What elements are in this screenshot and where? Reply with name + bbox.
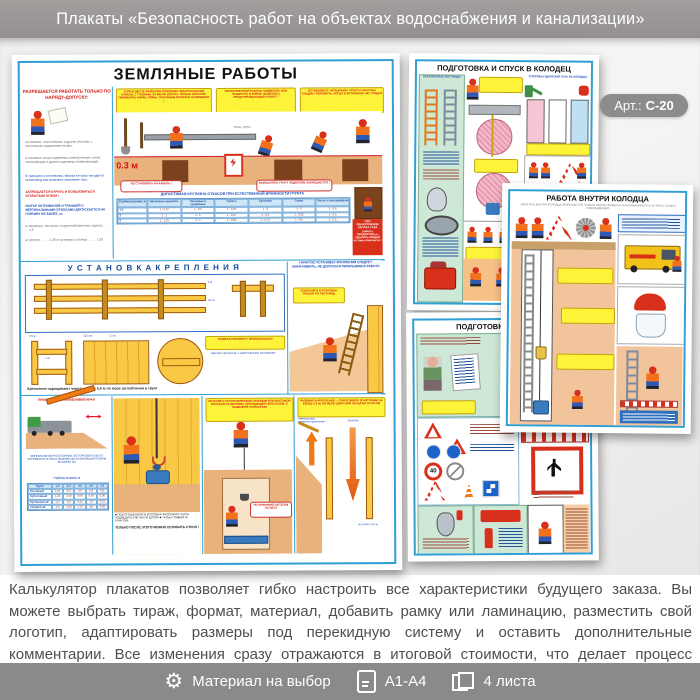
well-shaft	[527, 505, 563, 555]
digging-scene: Рельс, труба 0.3 м	[114, 111, 382, 184]
arrow-down	[346, 427, 360, 501]
table-cell: Суглинок	[248, 199, 282, 208]
micro-text	[423, 538, 469, 550]
crane-ground	[26, 433, 108, 449]
poster-earthworks[interactable]: ЗЕМЛЯНЫЕ РАБОТЫ РАЗРЕШАЕТСЯ РАБОТАТЬ ТОЛ…	[12, 53, 403, 572]
worker-figure	[31, 111, 45, 135]
pipe-rail	[144, 134, 256, 141]
worker-figure	[170, 126, 183, 148]
valve-ground	[114, 484, 200, 512]
valve-fitting	[486, 203, 500, 215]
shield-detail-label: Щитовое крепление с инвентарными распорк…	[205, 352, 281, 356]
timber-post	[46, 280, 52, 320]
crane-panel: ПРАВИЛЬНО УСТАНАВЛИВАЙ КРАН МИНИМАЛЬНОЕ …	[23, 399, 110, 555]
speed-limit-sign: 40	[424, 462, 442, 480]
table-cell: 1 : 0,5	[316, 217, 350, 222]
gas-analyzer	[481, 510, 521, 522]
lamp-top	[430, 261, 446, 267]
worker-figure	[124, 436, 139, 463]
permit-item-4: ЗАПРЕЩАЕТСЯ КУРИТЬ И ПОЛЬЗОВАТЬСЯ ОТКРЫТ…	[25, 191, 109, 199]
trench-slot	[274, 159, 302, 181]
ppe-panel	[617, 286, 686, 345]
bubble-cornices: ОСТАВШИЕСЯ «КОЗЫРЬКИ» ГРУНТА И ВАЛУНЫ СЛ…	[300, 87, 384, 113]
rope-wheel	[576, 218, 596, 238]
poster-descent-title: ПОДГОТОВКА И СПУСК В КОЛОДЕЦ	[417, 63, 591, 74]
worker-figure	[532, 217, 544, 238]
worker-figure	[356, 119, 370, 143]
truck-wheel	[60, 431, 65, 436]
table-cell: Лессы и лессовидные	[316, 198, 350, 207]
worker-figure	[516, 217, 528, 238]
roadworks-sign	[531, 446, 583, 494]
distance-arrow	[86, 415, 102, 419]
valve-wheel	[153, 464, 161, 470]
bracing-frame-panel: 1 м 0,5 м	[25, 274, 285, 333]
detour-sign	[482, 480, 499, 497]
footer-bar: ⚙ Материал на выбор А1-А4 4 листа	[0, 663, 700, 700]
bubble-no-loosen: РАЗРЫХЛЯТЬ ГРУНТ ПОДКОПОМ ЗАПРЕЩАЕТСЯ !	[256, 179, 332, 191]
inside-right-column	[616, 214, 684, 427]
hook-sketch	[427, 187, 447, 211]
manhole-lid-edge	[469, 105, 521, 115]
worker-figure	[258, 134, 275, 157]
worker-figure	[577, 163, 586, 179]
shovel-blade	[121, 146, 130, 154]
permit-heading: РАЗРЕШАЕТСЯ РАБОТАТЬ ТОЛЬКО ПО НАРЯДУ-ДО…	[23, 89, 111, 101]
micro-text	[470, 444, 514, 452]
extinguisher	[485, 528, 493, 548]
traffic-cone	[462, 484, 475, 499]
shoring-post	[31, 341, 38, 385]
truck-stripe	[630, 254, 656, 258]
detail-circle	[157, 338, 203, 384]
descent-ladders-panel: ПЕРЕНОСНЫЕ ЛЕСТНИЦЫ	[417, 74, 465, 302]
valve	[533, 400, 549, 414]
worker-figure	[541, 162, 550, 178]
blue-circle-sign	[446, 444, 461, 459]
safety-lamp	[424, 267, 456, 289]
pipe-label: Рельс, труба	[234, 126, 251, 129]
trench-pipe	[224, 536, 268, 544]
shoring-spacer	[36, 349, 67, 355]
blue-note	[618, 214, 686, 233]
truck-wheel	[32, 431, 37, 436]
valve-bullets: ■ ПОД ОПУЩЕННУЮ В КОТЛОВАН ФАСОННУЮ ЧАСТ…	[114, 512, 200, 524]
well-pink	[526, 99, 544, 143]
footer-format: А1-А4	[357, 670, 427, 693]
backfill-ground	[296, 455, 323, 553]
worker-figure	[364, 197, 372, 211]
worker-figure	[672, 256, 681, 272]
article-badge: Арт.:С-20	[600, 94, 688, 117]
winch-rope	[539, 250, 542, 400]
mini-bubble	[526, 143, 590, 156]
arrow-up	[306, 431, 318, 465]
timber-wall	[83, 340, 149, 384]
table-cell: Глина	[282, 198, 316, 207]
detail-spacer	[162, 358, 200, 366]
table-cell: Насыпные неуплотн.	[147, 199, 181, 208]
worker-figure	[467, 227, 476, 243]
truck-panel	[617, 234, 686, 285]
bracing-heading: У С Т А Н О В К А К Р Е П Л Е Н И Я	[21, 263, 287, 273]
well-shaft	[520, 249, 554, 421]
worker-figure	[470, 267, 481, 286]
worker-figure	[539, 522, 552, 544]
footer-sheets: 4 листа	[452, 672, 535, 691]
dim-15m: 1,5 м	[109, 334, 116, 337]
valve-caption-box: ■ ПОД ОПУЩЕННУЮ В КОТЛОВАН ФАСОННУЮ ЧАСТ…	[114, 512, 200, 554]
shoring-spacer	[36, 369, 67, 375]
warning-triangle-sign	[424, 422, 442, 438]
face-shield-icon	[636, 313, 666, 337]
micro-text	[423, 169, 459, 179]
article-value: С-20	[646, 98, 674, 113]
sheets-icon	[452, 672, 474, 691]
permit-item-2: в охранных зонах подземных электрических…	[25, 157, 109, 165]
bracing-caption: Крепление наращивают через каждые 0,5 м …	[27, 386, 285, 392]
page-title: Плакаты «Безопасность работ на объектах …	[56, 9, 644, 29]
micro-text	[423, 151, 459, 165]
prep-instruction-panel	[416, 333, 505, 418]
table-cell: 5	[118, 218, 148, 223]
note-box	[557, 268, 613, 285]
document-sheet	[450, 353, 481, 391]
pick-tool	[140, 122, 143, 148]
lifting-tackle	[437, 512, 455, 536]
manhole-cover	[476, 119, 512, 155]
bracing-right-panel: НАЧАТУЮ УСТАНОВКУ КРЕПЛЕНИЯ СЛЕДУЕТ ЗАКА…	[289, 261, 384, 391]
mini-bubble	[422, 400, 476, 414]
bubble-ladder: ОПУСКАЙСЯ В КОТЛОВАН ТОЛЬКО ПО ЛЕСТНИЦЕ	[293, 287, 345, 303]
table-cell: 3,50	[97, 504, 108, 509]
caption-box	[620, 410, 678, 424]
prep-well-scene	[527, 504, 589, 552]
dim-05m-2: 0,5 м	[29, 335, 36, 338]
truck-wheel	[662, 266, 669, 273]
sign-tripod	[424, 480, 446, 500]
note-box	[556, 354, 614, 371]
kettle-panel: КОТЕЛОК С РАСПЛАВЛЕННЫМ СВИНЦОМ ИЛИ МАСТ…	[203, 398, 292, 554]
permit-paper	[48, 107, 69, 125]
dim-ge15: ≥15 см	[83, 335, 92, 338]
table-cell: Супесь	[215, 199, 249, 208]
timber-beam	[34, 283, 206, 290]
footer-material: ⚙ Материал на выбор	[164, 671, 330, 692]
worker-figure	[226, 506, 238, 527]
instructor-figure	[423, 356, 441, 390]
footer-sheets-label: 4 листа	[483, 673, 535, 690]
info-strip	[563, 504, 589, 552]
table-cell: 3,0	[86, 504, 97, 509]
divider	[111, 396, 112, 554]
lantern	[535, 346, 546, 359]
dim-05m: 0,5 м	[208, 299, 215, 302]
timber-wall	[367, 305, 383, 393]
shoring-post	[366, 437, 373, 519]
gear-icon: ⚙	[164, 671, 183, 692]
kettle-bubble: КОТЕЛОК С РАСПЛАВЛЕННЫМ СВИНЦОМ ИЛИ МАСТ…	[205, 398, 293, 422]
ladder-scene	[616, 346, 683, 427]
shoring-post	[326, 437, 333, 519]
equipment-panel-2	[473, 505, 527, 555]
worker-figure	[483, 227, 492, 243]
table-cell: 1 : 1	[181, 218, 215, 223]
arrow-glyph	[486, 484, 495, 493]
equipment-panel-1	[417, 505, 473, 555]
prohibition-sign	[446, 462, 464, 480]
timber-post	[102, 280, 108, 320]
table-cell: 1,0	[52, 505, 63, 510]
voltage-sign	[224, 154, 243, 177]
helmet-icon	[634, 293, 666, 310]
gas-panel: ПРИ ОБНАРУЖЕНИИ ЗАПАХА ГАЗА работы ПРЕКР…	[352, 187, 382, 257]
micro-text	[533, 491, 573, 499]
note-box	[561, 308, 615, 325]
poster-inside-well-inner: РАБОТА ВНУТРИ КОЛОДЦА РАБОТАТЬ ВНУТРИ КО…	[506, 189, 687, 428]
tripod-winch	[546, 215, 572, 239]
blue-circle-sign	[426, 444, 441, 459]
permit-item-6: в насыпных, песчаных и крупнообломочных …	[26, 225, 110, 233]
poster-earthworks-title: ЗЕМЛЯНЫЕ РАБОТЫ	[20, 65, 392, 85]
underground	[510, 249, 616, 426]
kettle-note: НЕ ПРИНИМАЙ КОТЕЛОК НА ВЕСУ	[250, 502, 292, 518]
table-cell: 1 : 1,25	[148, 218, 182, 223]
poster-earthworks-inner: ЗЕМЛЯНЫЕ РАБОТЫ РАЗРЕШАЕТСЯ РАБОТАТЬ ТОЛ…	[18, 59, 397, 566]
worker-figure	[323, 337, 337, 361]
dim-1m: 1 м	[208, 281, 212, 284]
gas-warning: ПРИ ОБНАРУЖЕНИИ ЗАПАХА ГАЗА работы ПРЕКР…	[353, 219, 383, 255]
truck-wheel	[48, 431, 53, 436]
inside-main-scene	[510, 213, 616, 426]
kettle-pot	[240, 494, 249, 501]
permit-panel: РАЗРЕШАЕТСЯ РАБОТАТЬ ТОЛЬКО ПО НАРЯДУ-ДО…	[23, 89, 112, 259]
micro-text	[566, 508, 588, 548]
divider	[287, 262, 288, 394]
bubble-found-cable: ОБНАРУЖЕННЫЙ КАБЕЛЬ ПОДВЕСИТЬ ИЛИ ЗАЩИТИ…	[216, 88, 296, 114]
footer-format-label: А1-А4	[385, 673, 427, 690]
mini-bubble	[479, 77, 523, 93]
timber-post	[240, 281, 246, 317]
article-label: Арт.:	[614, 98, 641, 113]
trench-pit	[354, 187, 382, 219]
permit-item-7: в супесях . . . . . 1,25 в суглинках и г…	[26, 239, 110, 243]
shovel-tool	[124, 118, 127, 148]
table-cell: 1 : 0,5	[282, 217, 316, 222]
trench-slot	[162, 160, 188, 182]
lightning-icon	[230, 158, 236, 167]
micro-text	[420, 337, 480, 345]
worker-figure	[572, 390, 583, 409]
bubble-no-stand: НЕ СТАНОВИСЬ НА КАБЕЛЬ !	[120, 180, 182, 192]
depth-label: 0.3 м	[116, 160, 138, 170]
table-cell: 1,50	[63, 505, 74, 510]
hoist-rope	[155, 398, 157, 458]
dismantle-note: РАЗБИРАТЬ КРЕПЛЕНИЕ — СНИЗУ ВВЕРХ (УЧАСТ…	[297, 397, 385, 417]
crane-truck-cab	[28, 417, 41, 427]
permit-item-3: В траншеях и котлованах, вблизи которых …	[25, 175, 109, 183]
well-blue	[570, 100, 588, 144]
mini-bubble	[474, 159, 518, 173]
timber-beam	[232, 285, 274, 292]
ladder-gray	[443, 89, 456, 145]
slope-super-header: ДОПУСТИМАЯ КРУТИЗНА ОТКОСОВ ПРИ ЕСТЕСТВЕ…	[116, 191, 348, 197]
lifting-rod	[491, 115, 493, 157]
document-icon	[357, 670, 376, 693]
header-bar: Плакаты «Безопасность работ на объектах …	[0, 0, 700, 38]
poster-inside-well[interactable]: РАБОТА ВНУТРИ КОЛОДЦА РАБОТАТЬ ВНУТРИ КО…	[500, 183, 694, 434]
ladders-label: ПЕРЕНОСНЫЕ ЛЕСТНИЦЫ	[420, 75, 464, 79]
hydrant	[579, 86, 589, 96]
trench-slot	[342, 159, 368, 181]
striped-barrier	[620, 400, 678, 408]
crane-table-super: Глубина выемки, м	[28, 477, 106, 481]
valve-panel: ■ ПОД ОПУЩЕННУЮ В КОТЛОВАН ФАСОННУЮ ЧАСТ…	[113, 398, 200, 554]
table-cell: Песчаные и гравийные	[181, 199, 215, 208]
timber-beam	[34, 295, 206, 302]
bracing-note: НАЧАТУЮ УСТАНОВКУ КРЕПЛЕНИЯ СЛЕДУЕТ ЗАКА…	[289, 261, 383, 269]
bubble-spacer: СТАВЬТЕ РАСПОРКУ ГОРИЗОНТАЛЬНО	[205, 336, 285, 350]
table-cell: 1 : 0,75	[249, 217, 283, 222]
small-cylinder	[457, 510, 463, 520]
well-white	[548, 99, 566, 143]
table-cell: Глинистый	[28, 505, 52, 510]
strop-caption: ТОЛЬКО ПОСЛЕ ЭТОГО МОЖНО ОСЛАБИТЬ СТРОП …	[114, 526, 200, 530]
label-down: Засыпка	[348, 419, 359, 422]
table-cell: 1 : 0,85	[215, 218, 249, 223]
micro-text	[454, 358, 476, 385]
truck-wheel	[630, 265, 637, 272]
worker-figure	[529, 162, 538, 178]
ladder-orange	[424, 89, 437, 145]
worker-figure	[234, 422, 249, 448]
shoring-row: 0,5 м 1 м ≥15 см 1,5 м СТАВЬТЕ РАСПОРКУ …	[25, 334, 283, 385]
footer-material-label: Материал на выбор	[192, 673, 331, 690]
crane-table: Грунт1,02,03,04,05,0Песчаный1,503,04,05,…	[27, 483, 109, 511]
dim-1m-2: 1 м	[45, 357, 49, 360]
bubble-cable: ЕСЛИ В МЕСТЕ РАЗРЫТИЯ ПРОЛОЖЕН ЭЛЕКТРИЧЕ…	[116, 88, 212, 115]
crane-note: МИНИМАЛЬНОЕ РАССТОЯНИЕ ПО ГОРИЗОНТАЛИ ОТ…	[24, 455, 110, 465]
gas-removal-label: СПОСОБЫ УДАЛЕНИЯ ГАЗА ИЗ КОЛОДЦА	[525, 75, 591, 79]
digger-glyph	[547, 459, 561, 477]
rope-coil	[425, 215, 459, 235]
poster-inside-subtitle: РАБОТАТЬ ВНУТРИ КОЛОДЦА РАЗРЕШАЕТСЯ ТОЛЬ…	[520, 203, 676, 211]
micro-text	[499, 528, 523, 548]
shoring-post	[65, 341, 72, 385]
table-cell: 1,75	[74, 504, 85, 509]
valve-body	[146, 470, 170, 484]
micro-text	[622, 218, 680, 229]
label-limit: Не более 0,5 м	[358, 523, 378, 526]
slope-table: Глубина выемки, мНасыпные неуплотн.Песча…	[116, 197, 350, 224]
hero-area: ЗЕМЛЯНЫЕ РАБОТЫ РАЗРЕШАЕТСЯ РАБОТАТЬ ТОЛ…	[0, 38, 700, 575]
worker-figure	[311, 129, 330, 153]
micro-text	[422, 237, 458, 257]
timber-post	[260, 281, 266, 317]
micro-text	[623, 413, 675, 422]
table-cell: Глубина выемки, м	[117, 199, 147, 208]
permit-item-5: РЫТЬЕ КОТЛОВАНОВ И ТРАНШЕЙ С ВЕРТИКАЛЬНЫ…	[25, 205, 109, 217]
shaft-ladder	[523, 254, 535, 412]
worker-figure	[467, 79, 479, 100]
permit-item-1: на свалках, снегоотвалах и других участк…	[25, 141, 109, 149]
dismantle-panel: РАЗБИРАТЬ КРЕПЛЕНИЕ — СНИЗУ ВВЕРХ (УЧАСТ…	[295, 397, 384, 553]
timber-post	[158, 279, 164, 319]
worker-figure	[600, 218, 612, 239]
timber-beam	[34, 307, 206, 314]
worker-figure	[646, 367, 659, 390]
